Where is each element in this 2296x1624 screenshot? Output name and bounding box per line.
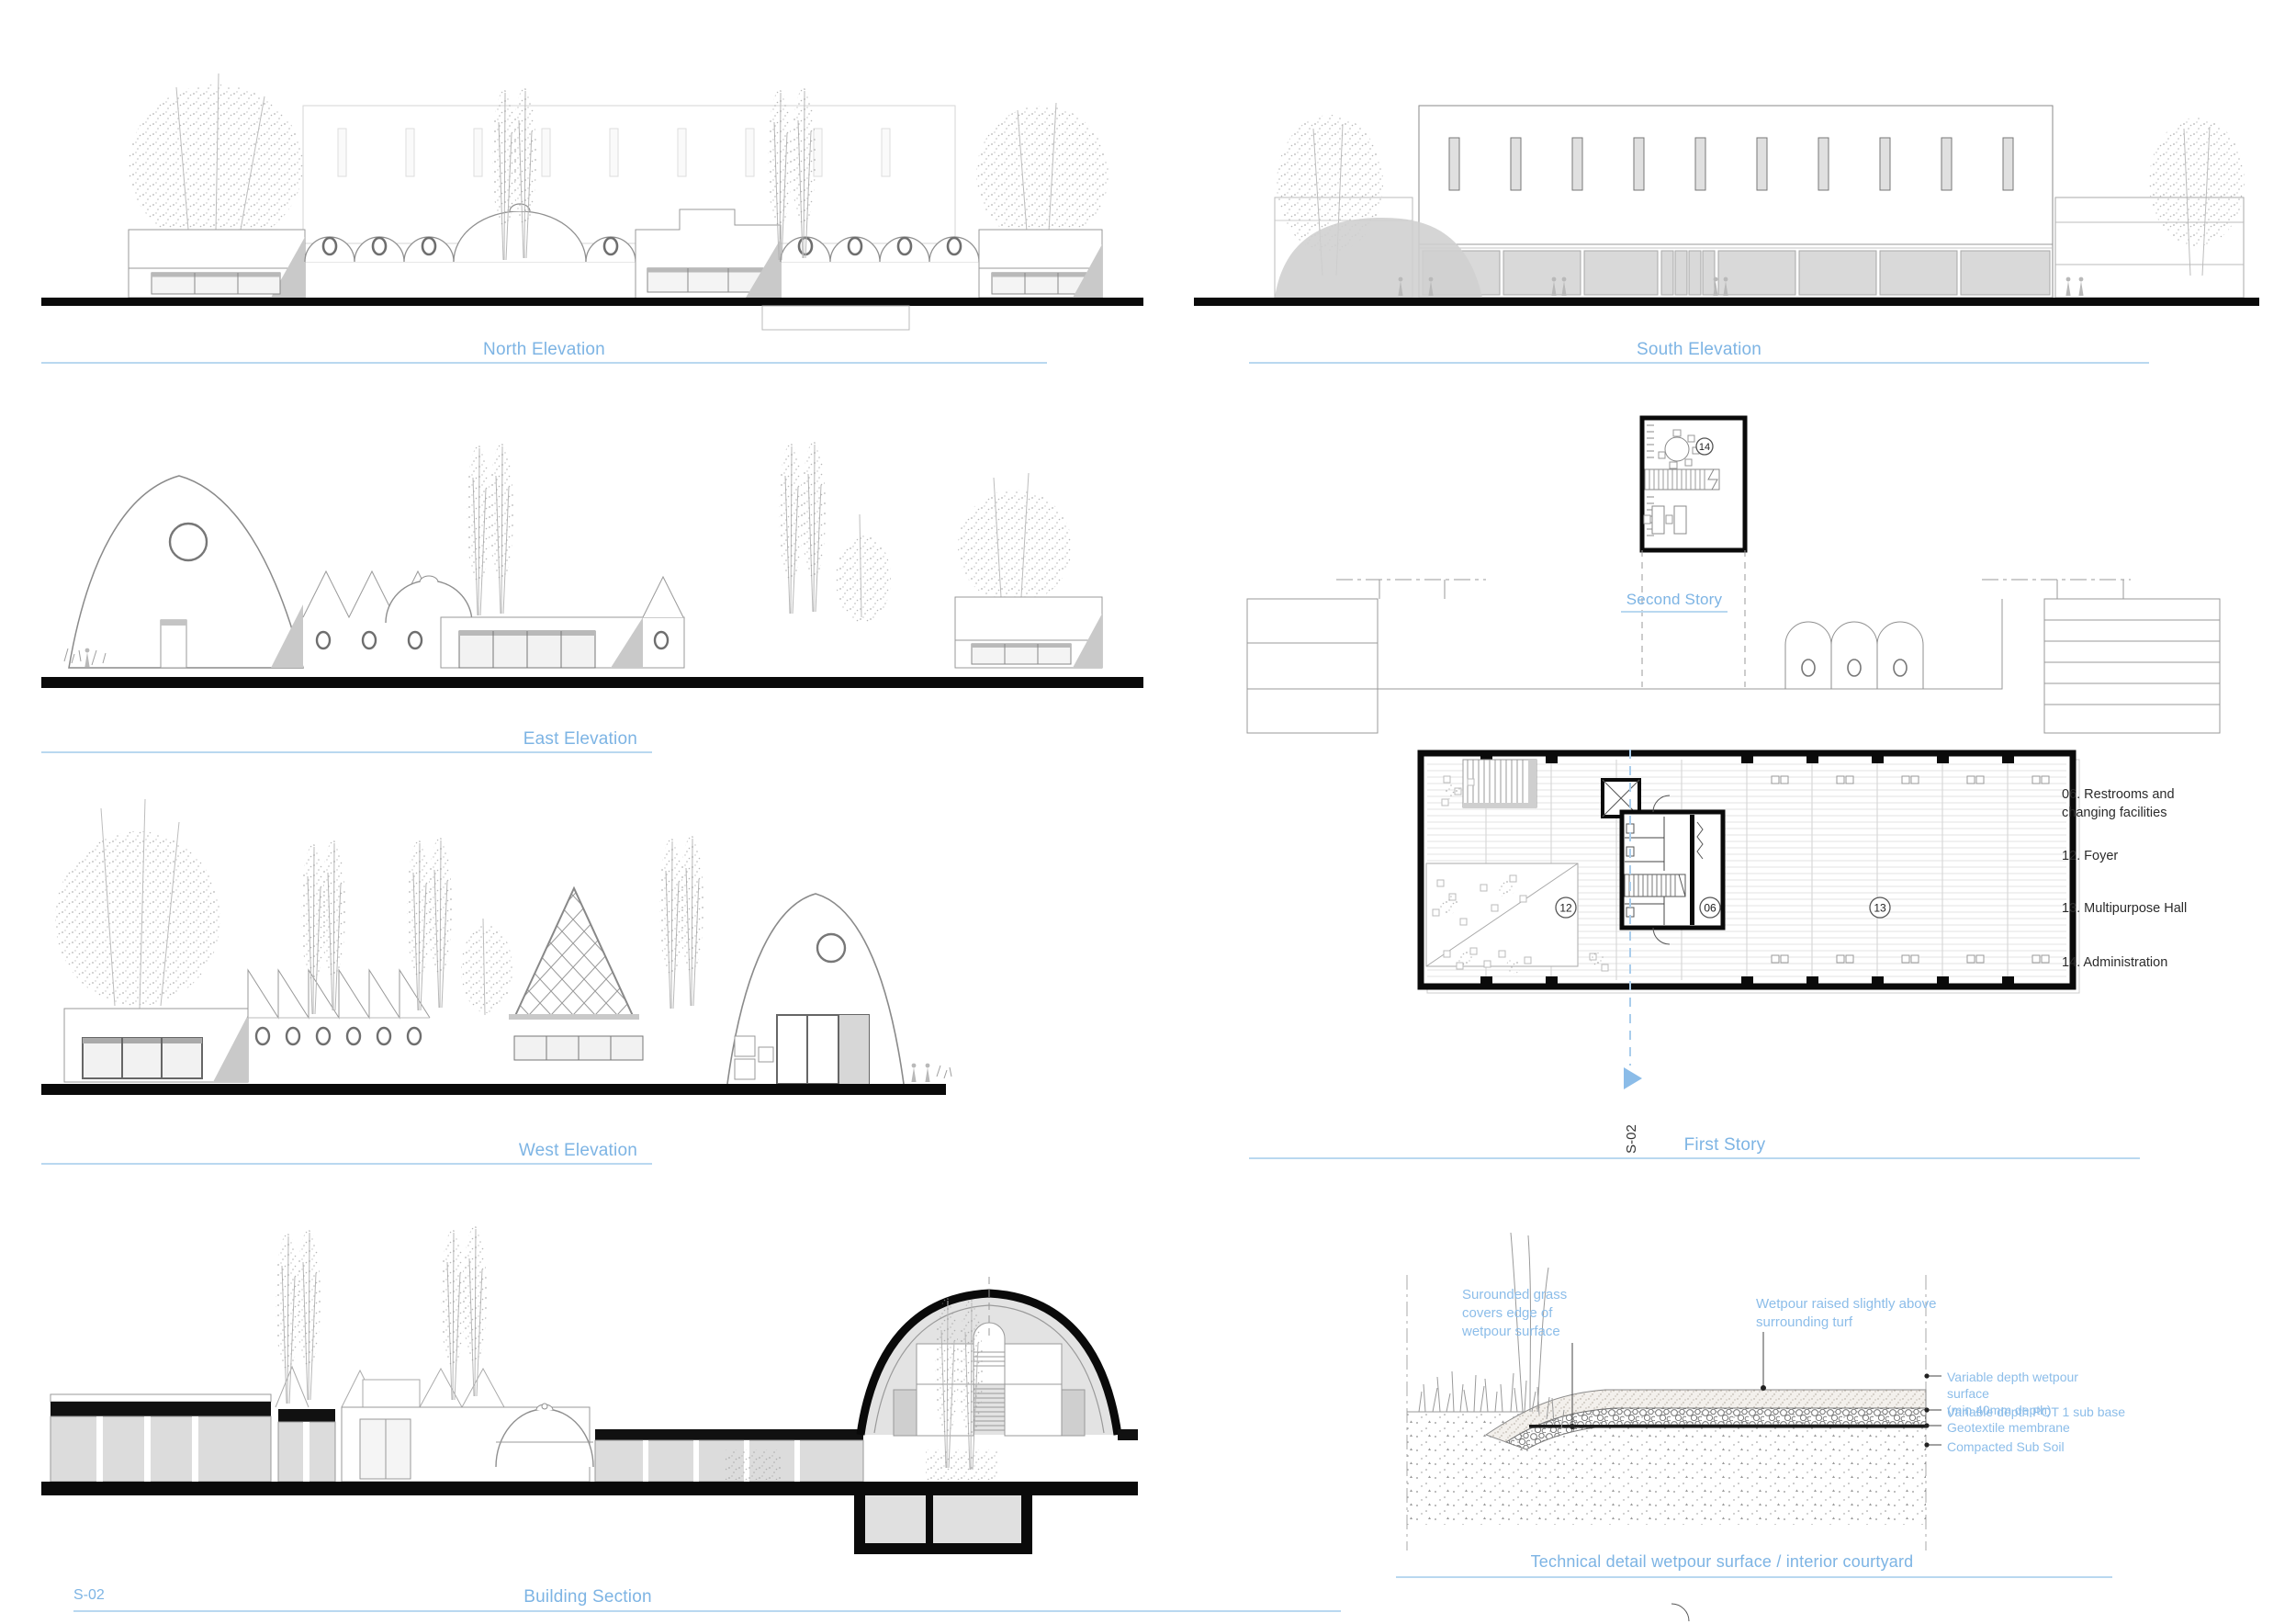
section-marker-arrow	[1624, 1067, 1642, 1089]
room-tag-hall: 13	[1874, 902, 1886, 915]
caption-underline	[41, 751, 652, 753]
site-outline	[1247, 580, 2220, 733]
room-tag-foyer: 12	[1559, 902, 1572, 915]
legend-item-restrooms: 06. Restrooms and changing facilities	[2062, 785, 2227, 822]
east-elevation-drawing	[41, 442, 1143, 688]
caption-underline	[1249, 362, 2149, 364]
technical-detail-drawing	[1407, 1233, 1941, 1551]
layer-label-compacted-subsoil: Compacted Sub Soil	[1947, 1438, 2131, 1455]
note-grass-edge: Surounded grass covers edge of wetpour s…	[1462, 1286, 1600, 1341]
caption-underline	[1249, 1157, 2140, 1159]
caption-north-elevation: North Elevation	[41, 340, 1047, 360]
caption-east-elevation: East Elevation	[41, 729, 652, 750]
architectural-sheet: 14	[0, 0, 2296, 1624]
building-section-drawing	[41, 1226, 1138, 1554]
north-elevation-drawing	[41, 73, 1143, 330]
legend-item-administration: 14. Administration	[2062, 953, 2227, 972]
note-wetpour-raised: Wetpour raised slightly above surroundin…	[1756, 1295, 1981, 1332]
legend-item-foyer: 12. Foyer	[2062, 847, 2227, 865]
caption-underline	[73, 1610, 1341, 1612]
caption-underline	[1621, 611, 1728, 613]
west-elevation-drawing	[41, 799, 951, 1095]
second-story-plan: 14	[1642, 418, 1747, 687]
caption-building-section: Building Section	[41, 1587, 1134, 1607]
caption-underline	[1396, 1576, 2112, 1578]
caption-technical-detail: Technical detail wetpour surface / inter…	[1364, 1552, 2080, 1572]
caption-second-story: Second Story	[1619, 591, 1729, 609]
legend-item-multipurpose-hall: 13. Multipurpose Hall	[2062, 899, 2227, 918]
caption-first-story: First Story	[1249, 1135, 2200, 1156]
caption-underline	[41, 1163, 652, 1165]
layer-label-geotextile: Geotextile membrane	[1947, 1419, 2131, 1436]
room-tag-restrooms: 06	[1704, 902, 1716, 915]
south-elevation-drawing	[1194, 106, 2259, 306]
room-tag-administration: 14	[1699, 442, 1710, 453]
caption-west-elevation: West Elevation	[41, 1141, 652, 1161]
layer-label-sub-base: Variable depth POT 1 sub base	[1947, 1404, 2149, 1420]
caption-south-elevation: South Elevation	[1249, 340, 2149, 360]
caption-underline	[41, 362, 1047, 364]
